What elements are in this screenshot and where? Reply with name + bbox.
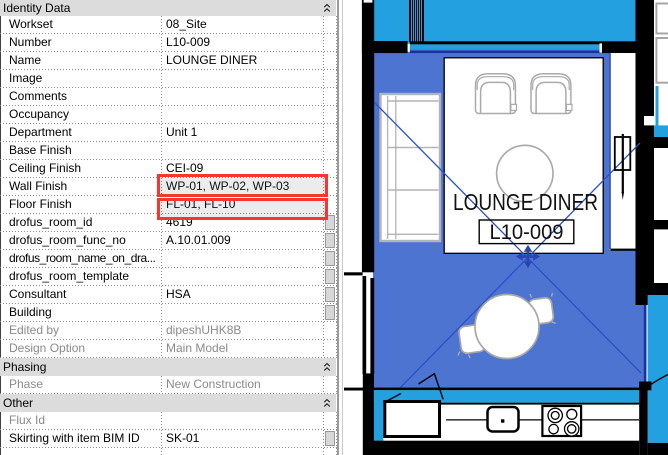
svg-text:LOUNGE DINER: LOUNGE DINER (453, 189, 598, 215)
svg-text:L10-009: L10-009 (490, 221, 564, 244)
